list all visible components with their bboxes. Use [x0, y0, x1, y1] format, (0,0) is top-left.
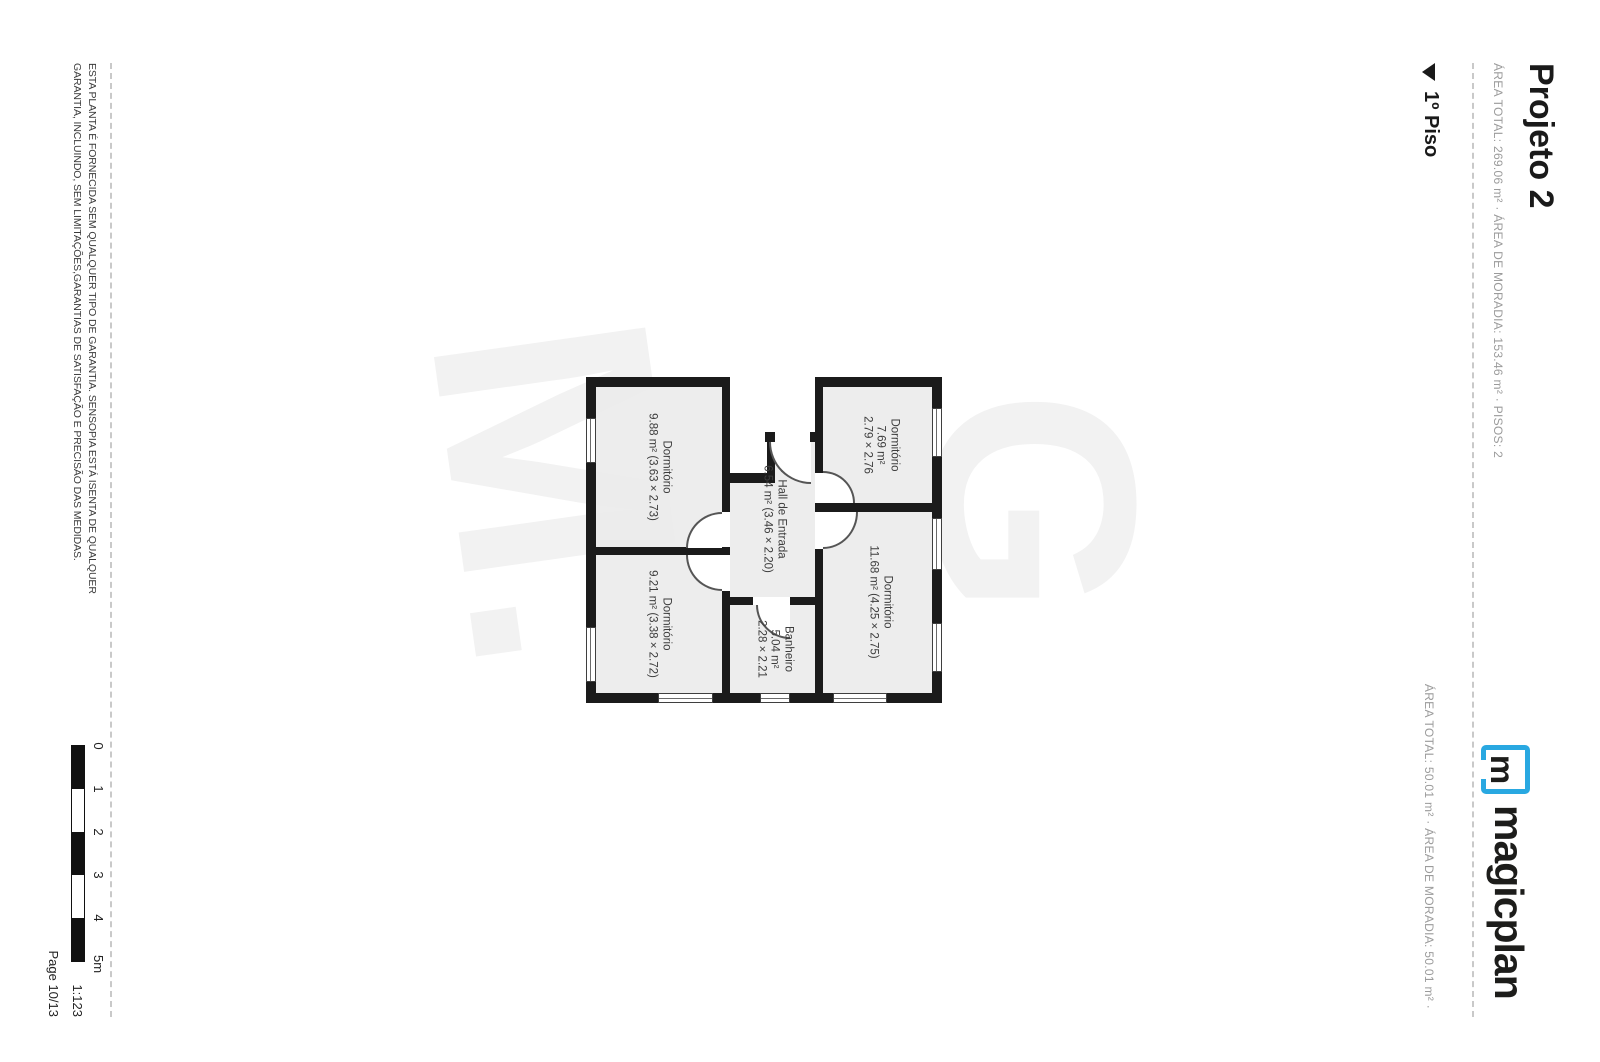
scale-tick-1: 1 — [91, 785, 106, 792]
window-dormitorio-2-a — [932, 518, 942, 570]
wall-exterior-left-lower — [586, 377, 725, 387]
scale-tick-4: 4 — [91, 914, 106, 921]
screenshot-viewport: Projeto 2 ÁREA TOTAL: 269.06 m² · ÁREA D… — [0, 0, 1600, 1062]
wall-divider-bedrooms-bottom — [596, 547, 730, 555]
page-title: Projeto 2 — [1521, 63, 1560, 208]
floor-plan-page: Projeto 2 ÁREA TOTAL: 269.06 m² · ÁREA D… — [0, 0, 1600, 1062]
room-label-banheiro: Banheiro5.04 m²2.28 × 2.21 — [754, 620, 795, 678]
wall-divider-bedrooms-top — [815, 503, 932, 512]
disclaimer-line-2: GARANTIA, INCLUINDO, SEM LIMITAÇÕES,GARA… — [69, 63, 84, 594]
wall-hall-bottom-right — [722, 591, 730, 703]
scale-ratio: 1:123 — [70, 984, 85, 1017]
page-number: Page 10/13 — [46, 950, 61, 1017]
room-label-hall: Hall de Entrada6.54 m² (3.46 × 2.20) — [761, 465, 788, 573]
room-label-dormitorio-1: Dormitório7.69 m²2.79 × 2.76 — [860, 416, 901, 474]
wall-hall-top-left — [815, 377, 823, 473]
wall-banheiro-lower — [730, 597, 753, 605]
window-banheiro — [760, 693, 790, 703]
scale-bar: 0 1 2 3 4 5m 1:123 Page 10/13 — [36, 745, 106, 1017]
window-dormitorio-4-bottom — [586, 627, 596, 682]
floor-label: 1º Piso — [1419, 91, 1442, 157]
wall-entry-jamb-top — [810, 432, 815, 442]
floor-section-header: 1º Piso ÁREA TOTAL: 50.01 m² · ÁREA DE M… — [1412, 63, 1442, 1017]
wall-banheiro-upper — [790, 597, 815, 605]
room-label-dormitorio-4: Dormitório9.21 m² (3.38 × 2.72) — [646, 570, 673, 678]
wall-hall-top-right — [815, 549, 823, 703]
scale-tick-5: 5m — [91, 955, 106, 973]
logo-icon-letter: m — [1481, 750, 1523, 789]
window-dormitorio-4 — [658, 693, 713, 703]
window-dormitorio-2-b — [932, 623, 942, 672]
project-area-summary: ÁREA TOTAL: 269.06 m² · ÁREA DE MORADIA:… — [1491, 63, 1505, 458]
window-dormitorio-1 — [932, 408, 942, 457]
window-dormitorio-2-side — [833, 693, 887, 703]
magicplan-logo-icon: m — [1481, 745, 1530, 794]
scale-tick-3: 3 — [91, 871, 106, 878]
floor-plan: Dormitório7.69 m²2.79 × 2.76 Dormitório1… — [586, 377, 942, 703]
magicplan-wordmark: magicplan — [1485, 805, 1532, 999]
wall-hall-bottom-left — [722, 377, 730, 512]
triangle-down-icon — [1422, 63, 1435, 81]
room-label-dormitorio-2: Dormitório11.68 m² (4.25 × 2.75) — [867, 545, 894, 658]
disclaimer-line-1: ESTA PLANTA É FORNECIDA SEM QUALQUER TIP… — [84, 63, 99, 594]
footer-divider — [110, 63, 112, 1017]
window-dormitorio-3 — [586, 418, 596, 463]
scale-tick-2: 2 — [91, 828, 106, 835]
magicplan-logo: m magicplan — [1480, 745, 1532, 1017]
room-label-dormitorio-3: Dormitório9.88 m² (3.63 × 2.73) — [646, 413, 673, 521]
header-divider — [1472, 63, 1474, 1017]
floor-area-summary: ÁREA TOTAL: 50.01 m² · ÁREA DE MORADIA: … — [1422, 684, 1436, 1009]
disclaimer: ESTA PLANTA É FORNECIDA SEM QUALQUER TIP… — [69, 63, 99, 594]
scale-bar-segments — [71, 745, 85, 962]
wall-exterior-left-upper — [815, 377, 942, 387]
scale-tick-0: 0 — [91, 742, 106, 749]
